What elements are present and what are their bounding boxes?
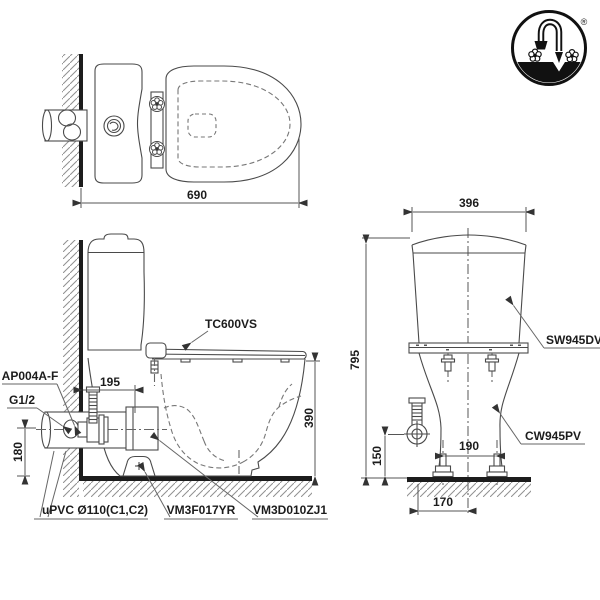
floor-line (79, 476, 312, 481)
dim-center-offset-170: 170 (433, 495, 453, 509)
dimension-795 (362, 238, 410, 476)
dim-wall-to-bolt-195: 195 (100, 375, 120, 389)
registered-trademark-icon: ® (581, 17, 588, 27)
wall-hatching (63, 240, 79, 497)
tank-bolt-icon (442, 353, 455, 382)
dim-inlet-height-150: 150 (370, 446, 384, 466)
dimension-396 (412, 207, 526, 232)
hinge-bolt-icon (150, 142, 165, 157)
label-tank-model: SW945DV (546, 333, 600, 347)
label-drain-pipe: uPVC Ø110(C1,C2) (42, 503, 148, 517)
front-view-drawing (361, 207, 600, 516)
top-view-drawing (43, 54, 302, 208)
technical-drawing-page: 690 195 390 180 TC600VS AP004A-F G1/2 uP… (0, 0, 600, 600)
label-floor-flange-model: VM3F017YR (167, 503, 236, 517)
dim-overall-depth-690: 690 (187, 188, 207, 202)
supply-pipe-plan (43, 110, 88, 141)
tank-front-outline (412, 235, 526, 245)
floor-hatching (83, 481, 312, 497)
label-connector-model: VM3D010ZJ1 (253, 503, 327, 517)
leader-lines (500, 306, 600, 445)
dim-bolt-spacing-190: 190 (459, 439, 479, 453)
tank-base-plate (409, 343, 528, 353)
tank-side-outline (88, 234, 144, 350)
label-seat-model: TC600VS (205, 317, 257, 331)
water-inlet-icon (404, 398, 430, 447)
pedestal-right-edge (500, 353, 519, 477)
dim-rim-height-390: 390 (302, 408, 316, 428)
lid-plan-outline (166, 66, 301, 182)
floor-flange-icon (123, 457, 155, 477)
label-thread-size: G1/2 (9, 393, 35, 407)
label-angle-valve-model: AP004A-F (2, 369, 59, 383)
dim-inlet-height-180: 180 (11, 442, 25, 462)
dim-total-height-795: 795 (348, 350, 362, 370)
label-bowl-model: CW945PV (525, 429, 581, 443)
dimension-150 (385, 435, 404, 477)
tank-plan-outline (95, 64, 142, 183)
dim-tank-width-396: 396 (459, 196, 479, 210)
tank-bolt-icon (486, 353, 499, 382)
floor-line (407, 477, 531, 482)
floor-hatching (407, 482, 531, 497)
hinge-bolt-icon (150, 97, 165, 112)
